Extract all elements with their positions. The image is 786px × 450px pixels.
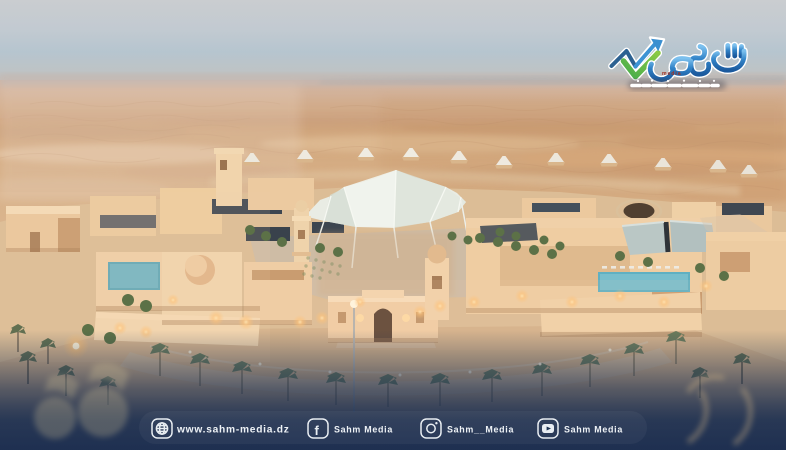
- svg-text:media: media: [662, 71, 682, 77]
- svg-text:Sahm Media: Sahm Media: [334, 425, 393, 435]
- svg-text:f: f: [315, 423, 320, 438]
- svg-text:Sahm Media: Sahm Media: [564, 425, 623, 435]
- svg-text:Sahm__Media: Sahm__Media: [447, 425, 514, 435]
- svg-text:www.sahm-media.dz: www.sahm-media.dz: [176, 425, 290, 436]
